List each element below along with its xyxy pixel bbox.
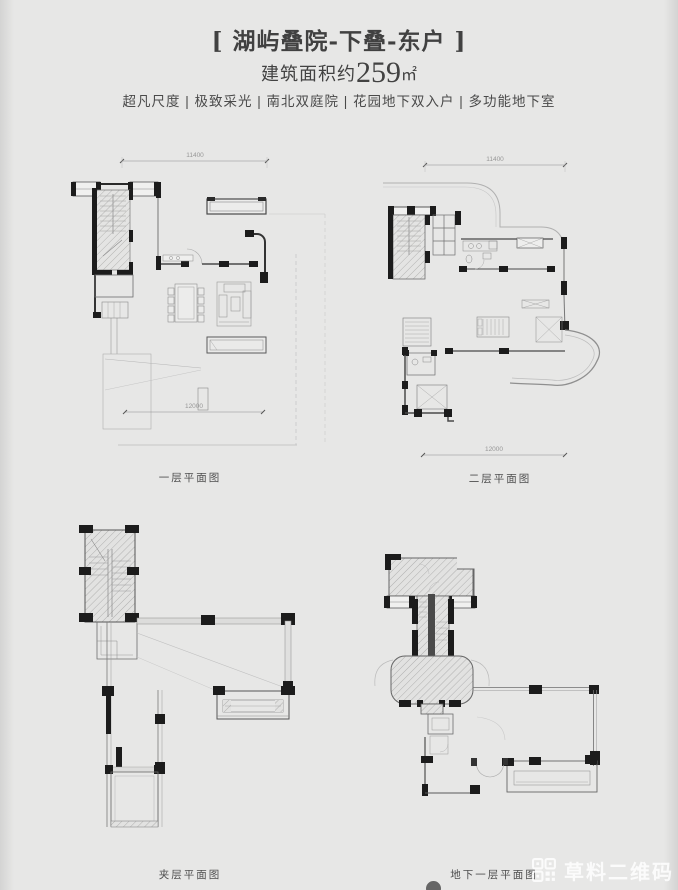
sofa-group bbox=[217, 282, 251, 326]
corridor bbox=[102, 622, 165, 827]
south-garden bbox=[103, 214, 325, 445]
left-edge-shade bbox=[0, 0, 14, 890]
floor1-plan-drawing: 11400 bbox=[59, 144, 331, 466]
window-bay bbox=[502, 755, 597, 792]
north-balcony bbox=[207, 197, 266, 214]
basement-core bbox=[375, 554, 489, 714]
kitchen-bath bbox=[459, 238, 555, 272]
bottom-edge-dot bbox=[426, 881, 441, 890]
mezzanine-caption: 夹层平面图 bbox=[90, 867, 290, 882]
west-rooms bbox=[402, 318, 454, 421]
dimension-label: 12000 bbox=[185, 403, 203, 410]
area-unit: ㎡ bbox=[401, 67, 417, 84]
floor2-caption: 二层平面图 bbox=[400, 471, 600, 486]
area-prefix: 建筑面积约 bbox=[261, 64, 356, 84]
dimension-label: 11400 bbox=[186, 152, 204, 159]
entry-porch bbox=[93, 275, 133, 354]
south-terrace bbox=[207, 337, 266, 353]
curved-terrace bbox=[510, 237, 599, 385]
right-window-room bbox=[213, 686, 295, 719]
floorplan-poster: [ 湖屿叠院-下叠-东户 ] 建筑面积约259㎡ 超凡尺度 | 极致采光 | 南… bbox=[0, 0, 678, 890]
east-wall bbox=[245, 230, 268, 283]
stair-core bbox=[92, 188, 133, 275]
dining-table bbox=[168, 284, 204, 322]
watermark-label: 草料二维码 bbox=[564, 856, 674, 885]
qr-icon bbox=[532, 858, 557, 883]
page-title: [ 湖屿叠院-下叠-东户 ] bbox=[0, 22, 678, 56]
entry-vestibule bbox=[428, 714, 453, 754]
floor2-dimension-bottom: 12000 bbox=[421, 446, 567, 457]
stair-tower bbox=[79, 525, 139, 622]
closet bbox=[433, 211, 461, 255]
area-number: 259 bbox=[356, 56, 401, 89]
area-line: 建筑面积约259㎡ bbox=[0, 56, 678, 90]
selling-points: 超凡尺度 | 极致采光 | 南北双庭院 | 花园地下双入户 | 多功能地下室 bbox=[0, 90, 678, 110]
void-walls bbox=[137, 613, 295, 691]
dimension-label: 12000 bbox=[485, 446, 503, 453]
watermark: 草料二维码 bbox=[532, 856, 674, 885]
bedrooms bbox=[445, 300, 565, 354]
floor1-dimension-bottom: 12000 bbox=[123, 403, 265, 414]
right-edge-shade bbox=[664, 0, 678, 890]
bottom-room bbox=[105, 765, 164, 827]
interior-walls bbox=[156, 182, 258, 270]
floor1-caption: 一层平面图 bbox=[90, 470, 290, 485]
basement-plan-drawing bbox=[369, 544, 651, 862]
stair-core bbox=[388, 206, 436, 279]
lower-vestibule bbox=[97, 622, 137, 659]
dimension-label: 11400 bbox=[486, 156, 504, 163]
floor2-plan-drawing: 11400 bbox=[371, 151, 633, 469]
mezzanine-plan-drawing bbox=[59, 509, 321, 857]
floor1-dimension-top: 11400 bbox=[120, 152, 269, 168]
floor2-dimension-top: 11400 bbox=[423, 156, 567, 172]
